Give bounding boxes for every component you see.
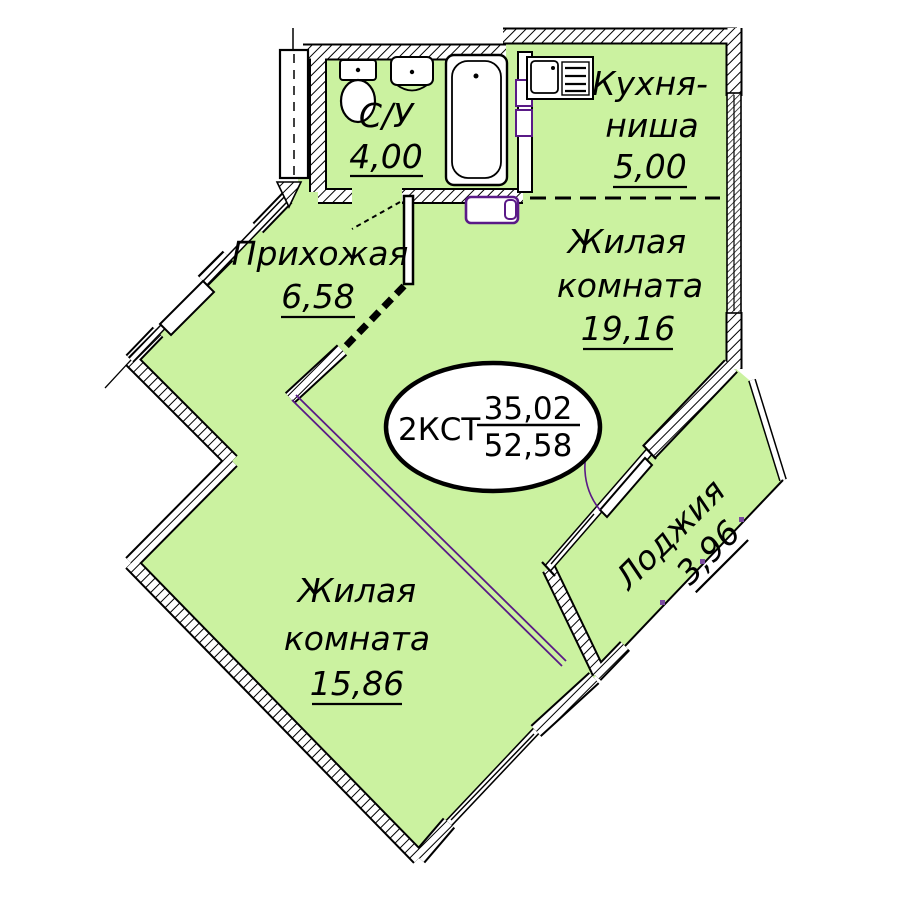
living-large-label-line1: Жилая: [566, 222, 686, 261]
kitchen-label-line2: ниша: [605, 106, 698, 145]
kitchen-area: 5,00: [613, 147, 686, 186]
floor-plan-page: С/У 4,00 Кухня- ниша 5,00 Прихожая 6,58 …: [0, 0, 900, 900]
living-small-label-line1: Жилая: [296, 571, 416, 610]
window-right-wall: [727, 93, 741, 313]
apartment-type: 2КСТ: [398, 412, 481, 448]
living-large-area: 19,16: [581, 309, 675, 348]
total-area: 52,58: [484, 428, 573, 464]
bathroom-label: С/У: [359, 96, 415, 135]
summary-oval: 2КСТ 35,02 52,58: [386, 363, 600, 491]
living-small-label-line2: комната: [284, 619, 430, 658]
kitchen-label-line1: Кухня-: [592, 64, 708, 103]
floor-plan-drawing: С/У 4,00 Кухня- ниша 5,00 Прихожая 6,58 …: [0, 0, 900, 900]
hallway-area: 6,58: [281, 277, 354, 316]
bathroom-area: 4,00: [349, 137, 422, 176]
hallway-label: Прихожая: [232, 234, 409, 273]
kitchen-sink-stove-icon: [527, 57, 593, 99]
sink-icon: [391, 57, 433, 91]
living-large-label-line2: комната: [557, 266, 703, 305]
washing-machine-icon: [466, 197, 518, 223]
bathtub-icon: [446, 55, 507, 185]
living-small-area: 15,86: [310, 664, 404, 703]
living-area-total: 35,02: [484, 391, 573, 427]
